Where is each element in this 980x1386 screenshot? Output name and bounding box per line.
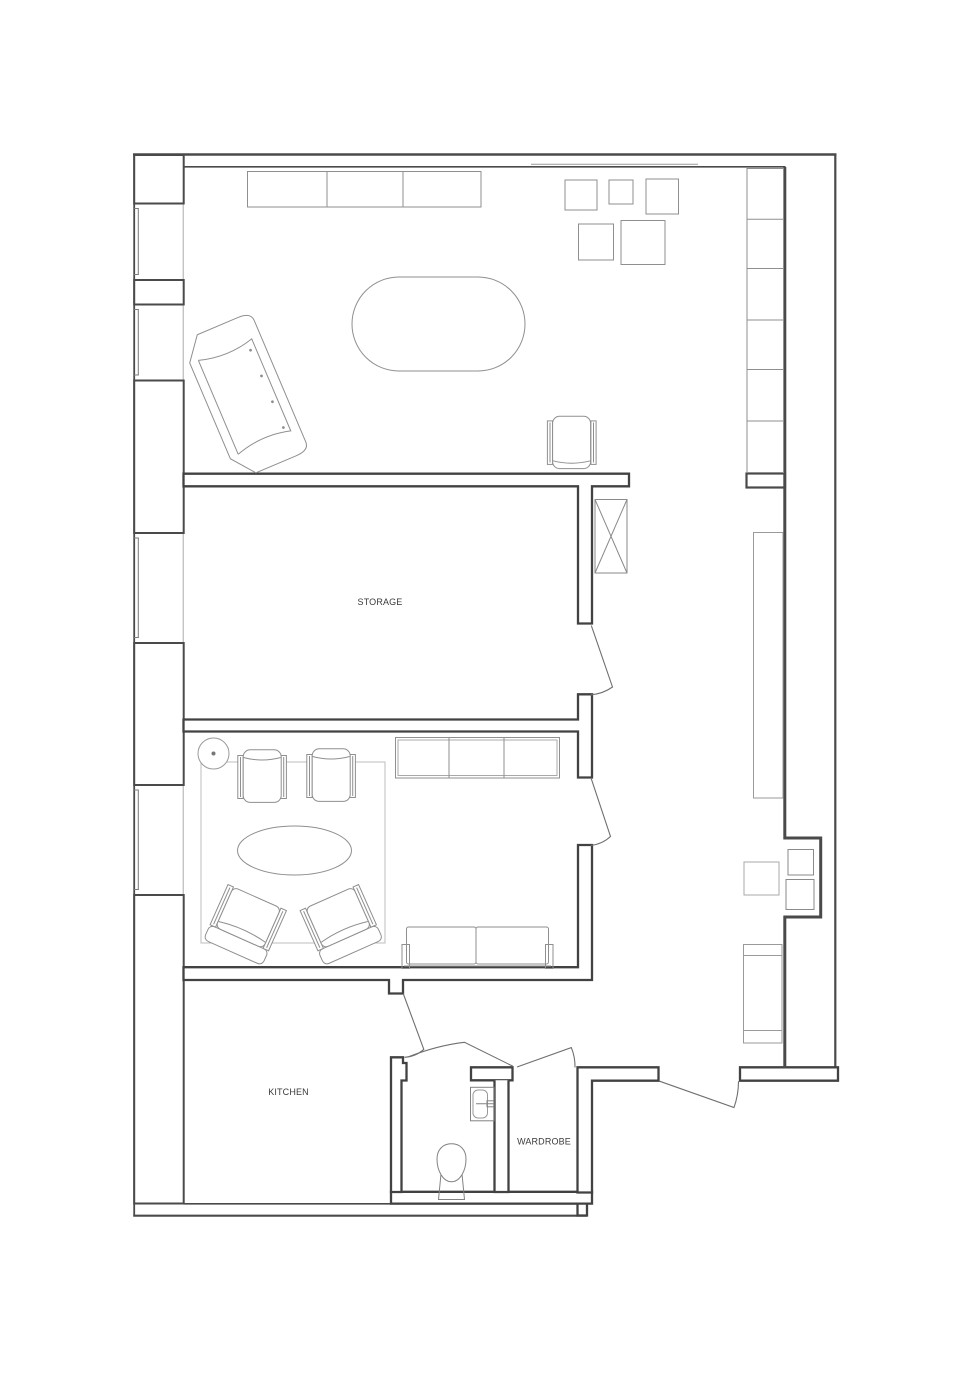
svg-text:STORAGE: STORAGE: [358, 597, 403, 607]
svg-text:WARDROBE: WARDROBE: [517, 1137, 571, 1147]
svg-text:KITCHEN: KITCHEN: [268, 1087, 309, 1097]
